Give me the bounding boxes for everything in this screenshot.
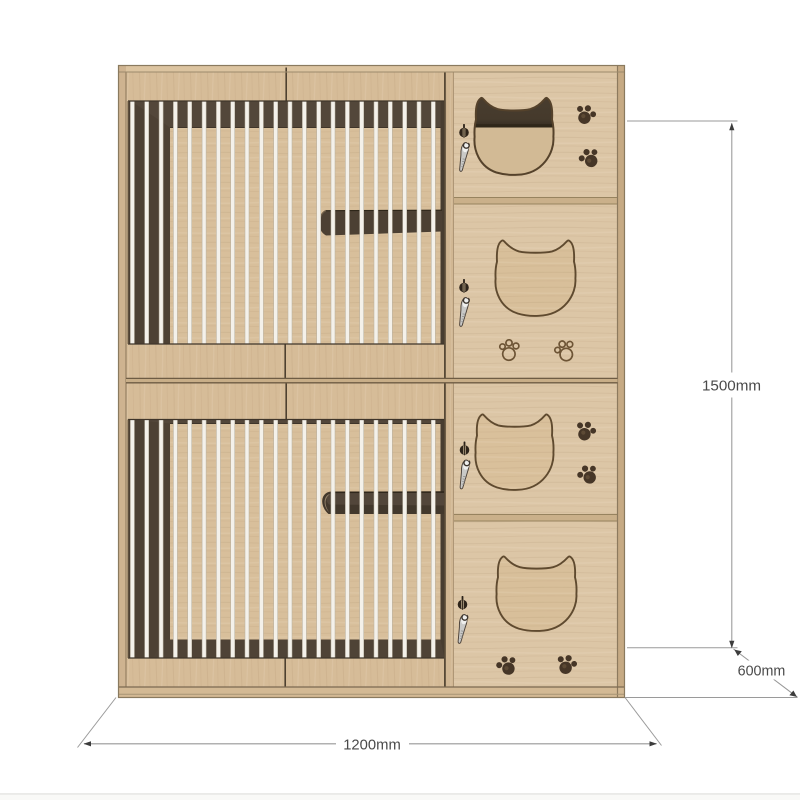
svg-text:600mm: 600mm (738, 664, 786, 680)
svg-text:1200mm: 1200mm (343, 738, 401, 754)
svg-text:1500mm: 1500mm (702, 378, 761, 395)
